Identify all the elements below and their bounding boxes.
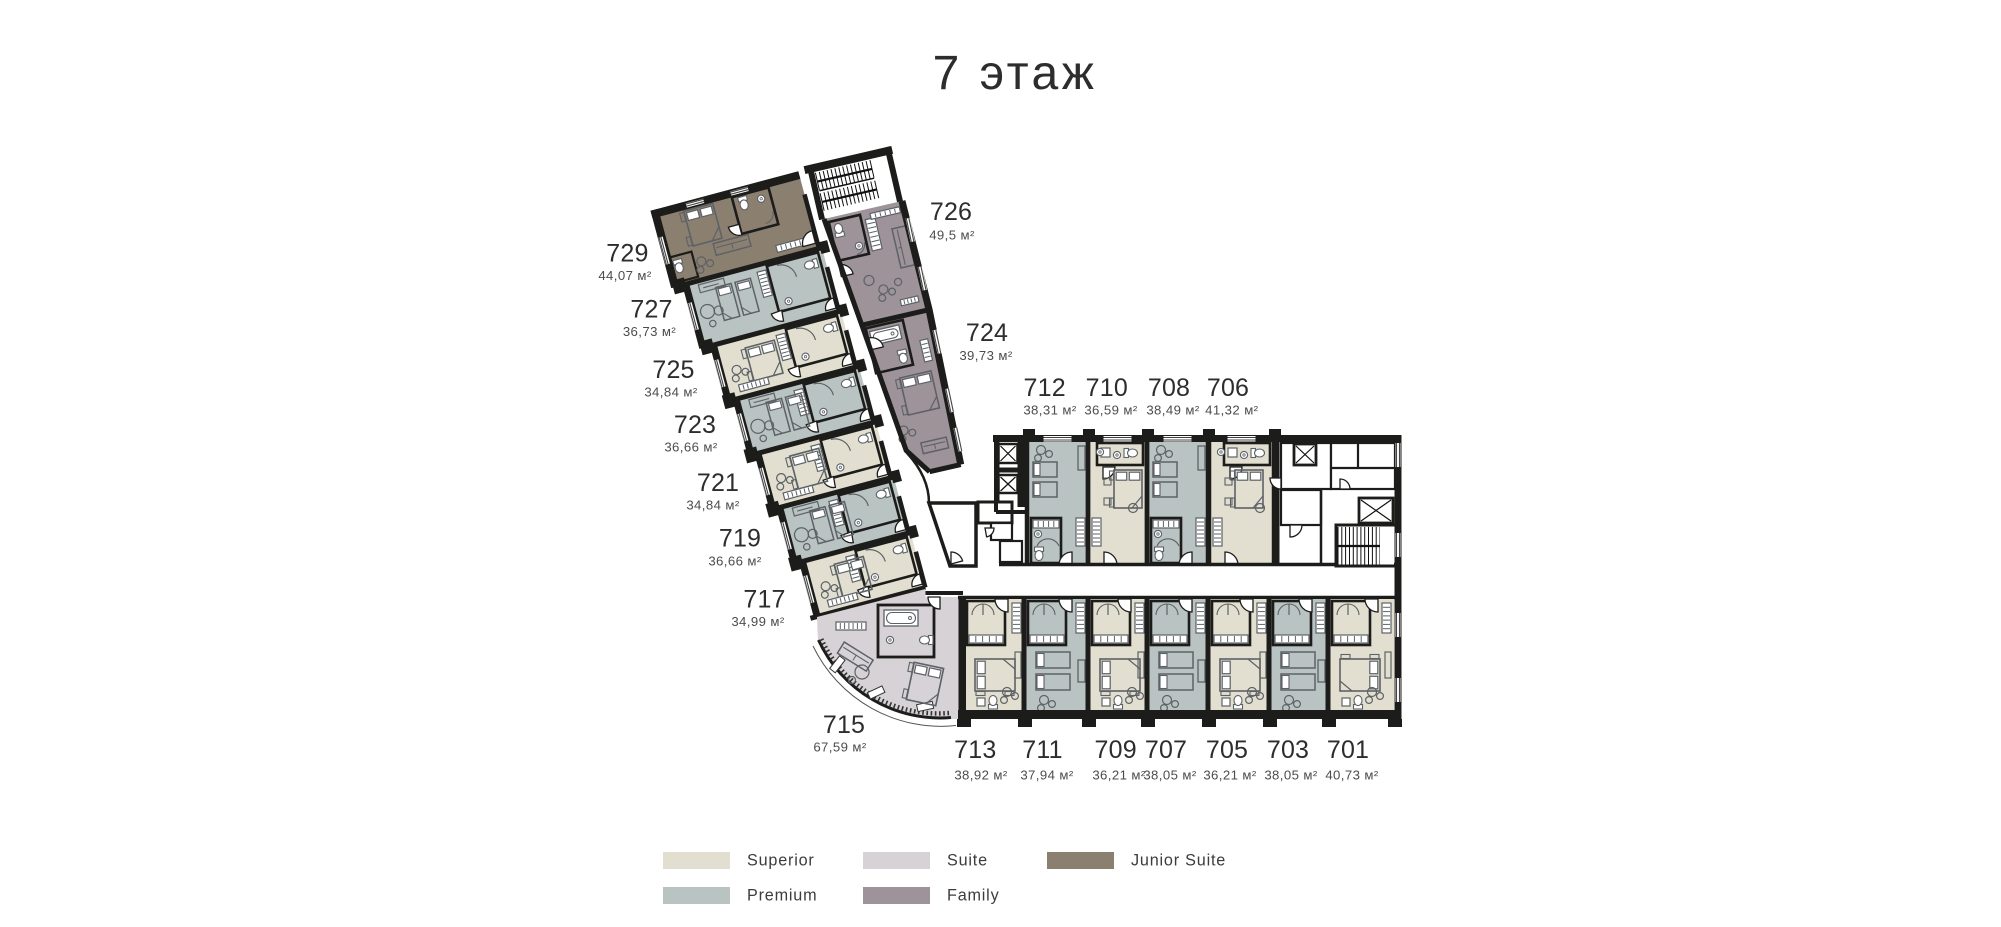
svg-text:723: 723: [674, 411, 716, 439]
svg-text:Family: Family: [947, 887, 1000, 905]
svg-text:708: 708: [1148, 374, 1190, 402]
svg-text:724: 724: [966, 319, 1008, 347]
svg-text:715: 715: [823, 711, 865, 739]
svg-text:Junior Suite: Junior Suite: [1131, 852, 1226, 870]
svg-text:38,05 м²: 38,05 м²: [1264, 768, 1318, 783]
svg-text:36,73 м²: 36,73 м²: [623, 324, 677, 339]
svg-text:44,07 м²: 44,07 м²: [598, 268, 652, 283]
svg-text:701: 701: [1327, 736, 1369, 764]
svg-text:38,49 м²: 38,49 м²: [1146, 403, 1200, 418]
svg-text:709: 709: [1095, 736, 1137, 764]
svg-text:39,73 м²: 39,73 м²: [959, 348, 1013, 363]
svg-text:41,32 м²: 41,32 м²: [1205, 403, 1259, 418]
svg-text:49,5 м²: 49,5 м²: [929, 228, 975, 243]
svg-text:711: 711: [1022, 736, 1062, 764]
svg-text:729: 729: [606, 240, 648, 268]
svg-text:37,94 м²: 37,94 м²: [1020, 768, 1074, 783]
svg-text:67,59 м²: 67,59 м²: [813, 740, 867, 755]
svg-text:710: 710: [1086, 374, 1128, 402]
svg-text:Superior: Superior: [747, 852, 815, 870]
svg-text:719: 719: [719, 525, 761, 553]
svg-text:Suite: Suite: [947, 852, 988, 870]
svg-text:34,84 м²: 34,84 м²: [644, 385, 698, 400]
svg-text:703: 703: [1267, 736, 1309, 764]
svg-text:712: 712: [1024, 374, 1066, 402]
svg-text:36,21 м²: 36,21 м²: [1203, 768, 1257, 783]
svg-text:705: 705: [1206, 736, 1248, 764]
svg-text:38,92 м²: 38,92 м²: [954, 768, 1008, 783]
svg-text:721: 721: [697, 469, 739, 497]
svg-text:706: 706: [1207, 374, 1249, 402]
svg-text:36,66 м²: 36,66 м²: [664, 440, 718, 455]
svg-text:713: 713: [954, 736, 996, 764]
svg-text:727: 727: [630, 295, 672, 323]
svg-text:36,59 м²: 36,59 м²: [1084, 403, 1138, 418]
svg-text:725: 725: [652, 356, 694, 384]
svg-text:707: 707: [1145, 736, 1187, 764]
svg-text:40,73 м²: 40,73 м²: [1325, 768, 1379, 783]
svg-text:Premium: Premium: [747, 887, 817, 905]
svg-text:34,84 м²: 34,84 м²: [686, 498, 740, 513]
svg-text:7 этаж: 7 этаж: [933, 47, 1098, 100]
svg-text:36,21 м²: 36,21 м²: [1092, 768, 1146, 783]
svg-text:38,05 м²: 38,05 м²: [1143, 768, 1197, 783]
svg-text:34,99 м²: 34,99 м²: [731, 614, 785, 629]
svg-text:38,31 м²: 38,31 м²: [1023, 403, 1077, 418]
svg-text:36,66 м²: 36,66 м²: [708, 554, 762, 569]
svg-text:717: 717: [743, 585, 785, 613]
svg-text:726: 726: [930, 198, 972, 226]
